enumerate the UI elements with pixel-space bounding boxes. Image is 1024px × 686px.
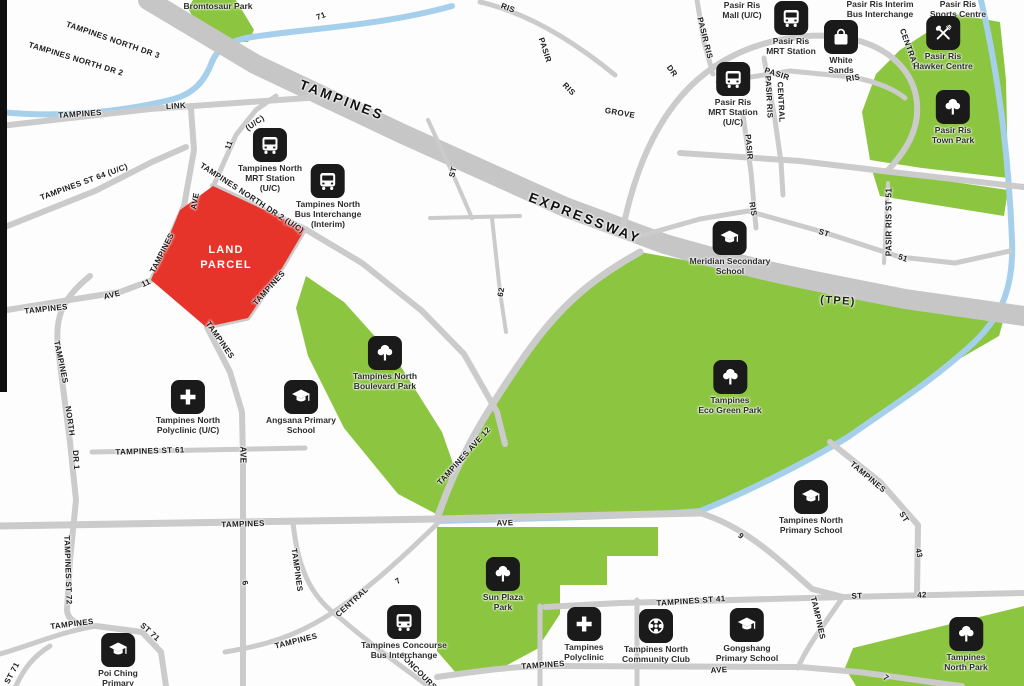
- cross-icon: [171, 380, 205, 414]
- land-parcel-label: LAND PARCEL: [200, 243, 252, 273]
- poi-sun-plaza-park: Sun Plaza Park: [483, 557, 523, 613]
- poi-gongshang-primary-school: Gongshang Primary School: [716, 608, 778, 664]
- poi-label: Tampines Eco Green Park: [698, 396, 761, 416]
- poi-tampines-eco-green-park: Tampines Eco Green Park: [698, 360, 761, 416]
- road-label-62: 62: [496, 286, 507, 297]
- poi-label: Tampines North Boulevard Park: [353, 372, 417, 392]
- poi-pasir-ris-town-park: Pasir Ris Town Park: [932, 90, 974, 146]
- poi-angsana-primary-school: Angsana Primary School: [266, 380, 336, 436]
- school-icon: [284, 380, 318, 414]
- road-label-ave-vertical: AVE: [239, 447, 248, 464]
- shopping-bag-icon: [824, 20, 858, 54]
- school-icon: [101, 633, 135, 667]
- poi-pasir-ris-mall: Pasir Ris Mall (U/C): [722, 1, 761, 21]
- map-canvas: LAND PARCEL TAMPINES NORTH DR 3 TAMPINES…: [0, 0, 1024, 686]
- poi-label: Tampines North Park: [944, 653, 987, 673]
- school-icon: [713, 221, 747, 255]
- poi-pasir-ris-hawker-centre: Pasir Ris Hawker Centre: [913, 16, 973, 72]
- poi-tampines-north-bus-interchange: Tampines North Bus Interchange (Interim): [295, 164, 362, 229]
- bus-icon: [774, 1, 808, 35]
- road-label-pasir-ris-st51-vert: PASIR RIS ST 51: [885, 188, 894, 256]
- poi-label: Tampines Concourse Bus Interchange: [361, 641, 447, 661]
- poi-tampines-concourse-bus-interchange: Tampines Concourse Bus Interchange: [361, 605, 447, 661]
- poi-label: Pasir Ris MRT Station (U/C): [708, 98, 758, 127]
- park-areas: [188, 0, 1024, 686]
- cross-icon: [567, 607, 601, 641]
- road-label-ave-bottom-b: AVE: [710, 665, 727, 675]
- bus-icon: [387, 605, 421, 639]
- poi-label: Tampines North Community Club: [622, 645, 690, 665]
- poi-label: Angsana Primary School: [266, 416, 336, 436]
- road-label-tampines-link-b: LINK: [166, 101, 187, 111]
- poi-bromtosaur-park: Bromtosaur Park: [184, 2, 253, 12]
- tree-icon: [936, 90, 970, 124]
- poi-label: Pasir Ris Mall (U/C): [722, 1, 761, 21]
- poi-label: Meridian Secondary School: [690, 257, 771, 277]
- poi-pasir-ris-mrt-station: Pasir Ris MRT Station: [766, 1, 816, 57]
- poi-label: Pasir Ris Town Park: [932, 126, 974, 146]
- tree-icon: [486, 557, 520, 591]
- poi-pasir-ris-interim-bus-interchange: Pasir Ris Interim Bus Interchange: [846, 0, 913, 20]
- poi-white-sands: White Sands: [824, 20, 858, 76]
- road-label-tampines-ave9-b: AVE: [496, 518, 513, 528]
- poi-label: Tampines North Polyclinic (U/C): [156, 416, 220, 436]
- utensils-icon: [926, 16, 960, 50]
- poi-label: Pasir Ris Hawker Centre: [913, 52, 973, 72]
- poi-pasir-ris-mrt-station-uc: Pasir Ris MRT Station (U/C): [708, 62, 758, 127]
- poi-label: Tampines North Primary School: [779, 516, 843, 536]
- poi-label: Sun Plaza Park: [483, 593, 523, 613]
- poi-tampines-polyclinic: Tampines Polyclinic: [564, 607, 604, 663]
- tree-icon: [949, 617, 983, 651]
- poi-label: Gongshang Primary School: [716, 644, 778, 664]
- poi-label: Tampines Polyclinic: [564, 643, 604, 663]
- poi-label: Pasir Ris Interim Bus Interchange: [846, 0, 913, 20]
- poi-label: Poi Ching Primary School: [98, 669, 138, 686]
- poi-tampines-north-community-club: Tampines North Community Club: [622, 609, 690, 665]
- school-icon: [730, 608, 764, 642]
- poi-label: White Sands: [828, 56, 854, 76]
- poi-label: Tampines North Bus Interchange (Interim): [295, 200, 362, 229]
- poi-tampines-north-polyclinic: Tampines North Polyclinic (U/C): [156, 380, 220, 436]
- road-label-st42-b: 42: [917, 590, 927, 599]
- poi-label: Bromtosaur Park: [184, 2, 253, 12]
- bus-icon: [253, 128, 287, 162]
- poi-tampines-north-primary-school: Tampines North Primary School: [779, 480, 843, 536]
- road-label-tpe: (TPE): [820, 294, 856, 308]
- road-label-tampines-ave9-a: TAMPINES: [221, 519, 265, 530]
- poi-tampines-north-mrt-station: Tampines North MRT Station (U/C): [238, 128, 302, 193]
- bus-icon: [716, 62, 750, 96]
- school-icon: [794, 480, 828, 514]
- poi-tampines-north-boulevard-park: Tampines North Boulevard Park: [353, 336, 417, 392]
- tree-icon: [368, 336, 402, 370]
- community-club-icon: [639, 609, 673, 643]
- poi-meridian-secondary-school: Meridian Secondary School: [690, 221, 771, 277]
- poi-tampines-north-park: Tampines North Park: [944, 617, 987, 673]
- bus-icon: [311, 164, 345, 198]
- poi-label: Tampines North MRT Station (U/C): [238, 164, 302, 193]
- tree-icon: [713, 360, 747, 394]
- road-label-st42-a: ST: [851, 591, 862, 601]
- scan-border: [0, 0, 7, 392]
- poi-label: Pasir Ris MRT Station: [766, 37, 816, 57]
- road-label-north-dr1-c: DR 1: [71, 450, 81, 470]
- road-label-st43-c: 43: [914, 547, 925, 558]
- poi-poi-ching-primary-school: Poi Ching Primary School: [98, 633, 138, 686]
